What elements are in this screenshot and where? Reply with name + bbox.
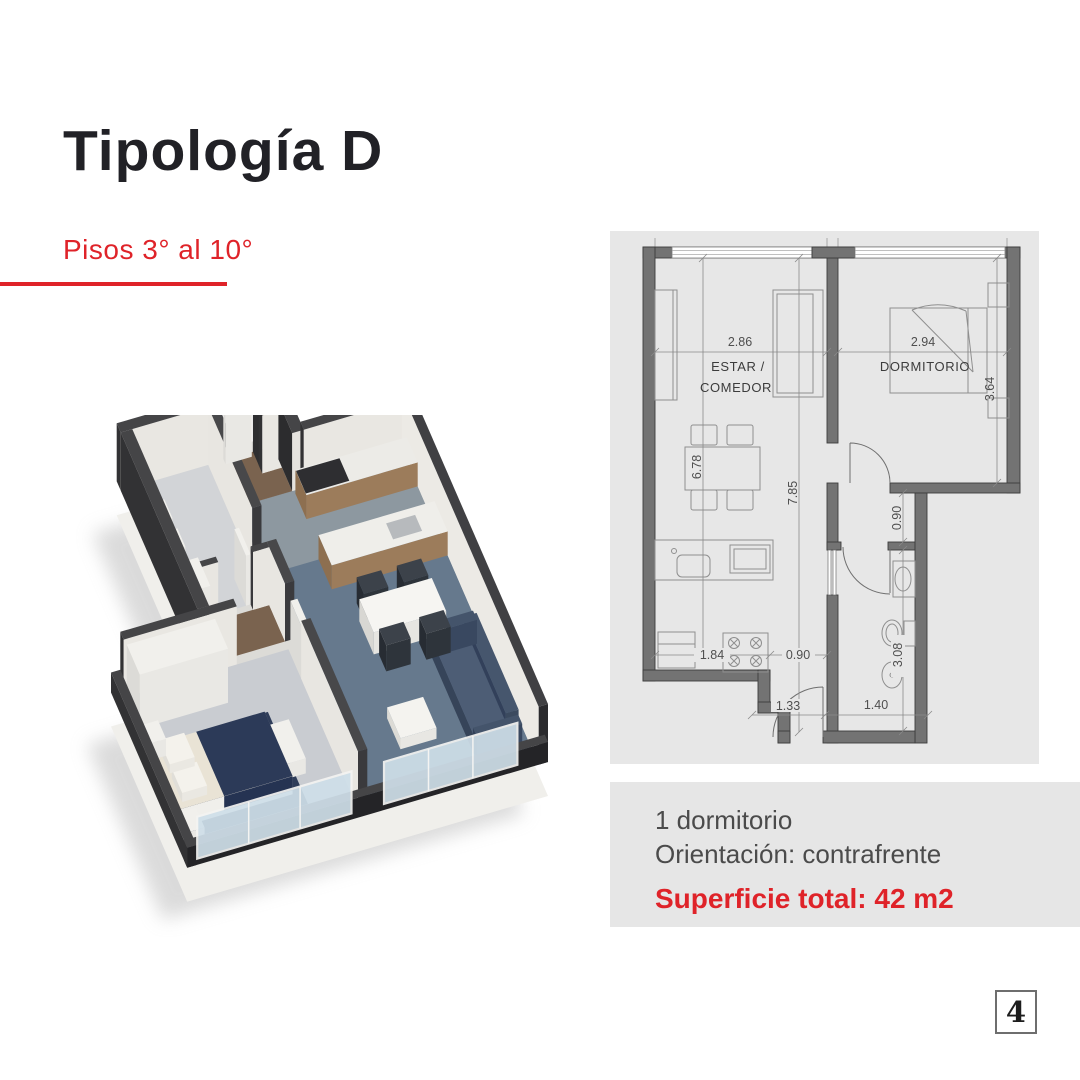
page-number: 4 (995, 990, 1037, 1034)
bed-outline (890, 308, 987, 393)
bedroom-label: DORMITORIO (880, 359, 970, 374)
dim-bedroom-depth: 3.64 (983, 377, 997, 401)
floor-plan: 2.86 2.94 6.78 7.85 3.64 0.90 3.08 1.84 … (610, 231, 1039, 764)
brochure-page: { "header": { "title": "Tipología D", "s… (0, 0, 1080, 1080)
orientation-line: Orientación: contrafrente (655, 837, 1080, 871)
dim-bedroom-width: 2.94 (911, 335, 935, 349)
dim-kitchen-right: 0.90 (786, 648, 810, 662)
floors-subtitle: Pisos 3° al 10° (63, 234, 253, 266)
bedrooms-line: 1 dormitorio (655, 803, 1080, 837)
surface-line: Superficie total: 42 m2 (655, 883, 1080, 915)
unit-info-panel: 1 dormitorio Orientación: contrafrente S… (610, 782, 1080, 927)
accent-underline (0, 282, 227, 286)
plan-windows (672, 247, 1005, 258)
iso-shape (251, 546, 253, 610)
living-label-2: COMEDOR (700, 380, 772, 395)
page-title: Tipología D (63, 118, 383, 184)
dim-kitchen-left: 1.84 (700, 648, 724, 662)
dim-living-depth: 6.78 (690, 455, 704, 479)
extension-ticks (655, 238, 1007, 247)
iso-shape (223, 415, 225, 464)
dim-bath-depth: 3.08 (891, 643, 905, 667)
dim-bath-width: 1.40 (864, 698, 888, 712)
dim-entry: 1.33 (776, 699, 800, 713)
dim-total-depth: 7.85 (786, 481, 800, 505)
dim-living-width: 2.86 (728, 335, 752, 349)
iso-shape (259, 415, 263, 473)
stove-burners (729, 638, 762, 667)
isometric-apartment (55, 415, 570, 945)
iso-shape (226, 415, 252, 464)
iso-shape (117, 423, 121, 490)
floor-plan-panel: 2.86 2.94 6.78 7.85 3.64 0.90 3.08 1.84 … (610, 231, 1039, 764)
plan-walls (643, 247, 1020, 743)
living-label-1: ESTAR / (711, 359, 765, 374)
apartment-3d-render (55, 415, 570, 945)
dim-hall: 0.90 (890, 506, 904, 530)
iso-shape (246, 554, 251, 605)
iso-shape (253, 547, 269, 610)
